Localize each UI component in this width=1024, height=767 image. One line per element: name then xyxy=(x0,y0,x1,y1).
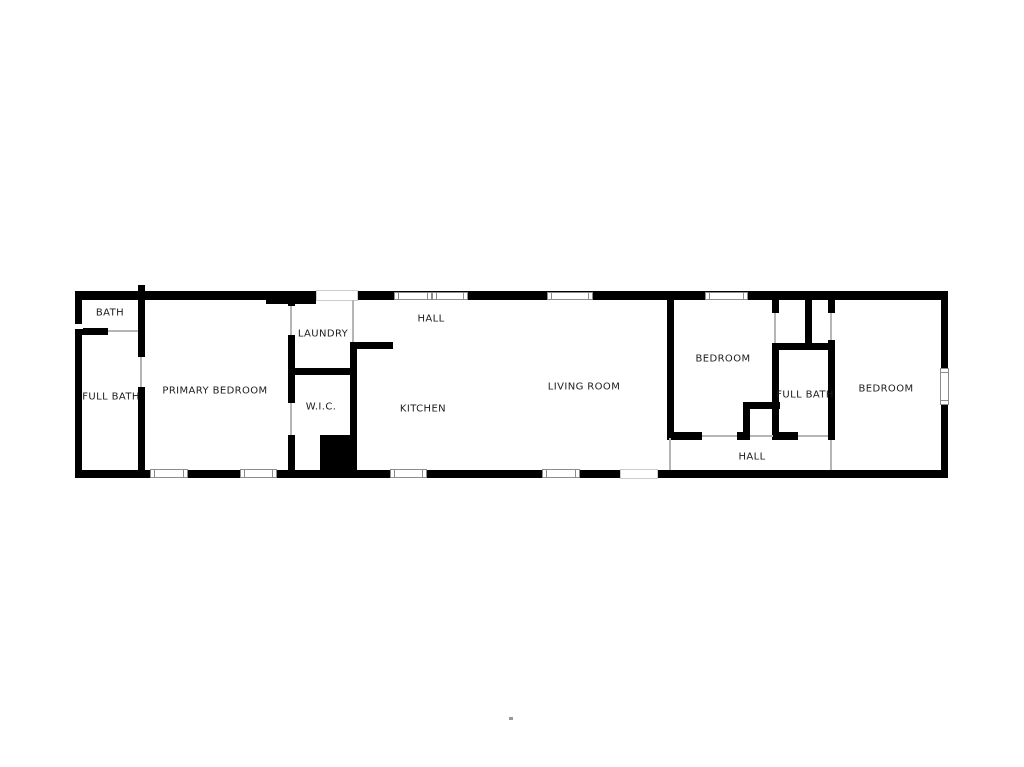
left-wall-notch xyxy=(74,324,83,329)
window-top-kitchen-a-window-icon xyxy=(394,292,432,300)
room-label-kitchen: KITCHEN xyxy=(400,404,446,415)
window-bottom-kitchen-window-icon xyxy=(390,469,427,478)
outer-left-wall-upper xyxy=(75,291,82,324)
bedroom2-closet-opening xyxy=(774,313,776,343)
window-top-kitchen-b-window-icon xyxy=(432,292,468,300)
window-top-bedroom2-window-icon xyxy=(705,292,748,300)
primary-east-wall-lower xyxy=(288,435,295,473)
artifact-dot xyxy=(509,717,513,720)
room-label-hall-2: HALL xyxy=(738,452,765,463)
outer-left-wall-lower xyxy=(75,329,82,478)
hall-living-room-opening xyxy=(669,438,671,470)
laundry-hall-opening xyxy=(352,300,354,342)
bedroom2-south-wall xyxy=(667,432,702,440)
hall-closet-left-wall xyxy=(743,408,750,440)
bath2-north-wall xyxy=(772,343,833,350)
bedroom3-door-opening xyxy=(830,440,832,470)
window-bottom-primary-b-window-icon xyxy=(240,469,277,478)
window-right-bedroom3-window-icon xyxy=(940,368,949,405)
primary-east-wall-mid xyxy=(288,335,295,403)
window-top-living-room-window-icon xyxy=(547,292,593,300)
bath-divider-wall xyxy=(82,328,108,335)
room-label-primary-bedroom: PRIMARY BEDROOM xyxy=(162,386,267,397)
room-label-bedroom-2: BEDROOM xyxy=(696,354,751,365)
room-label-wic: W.I.C. xyxy=(306,402,337,413)
fullbath2-door-opening xyxy=(798,435,828,437)
room-label-laundry: LAUNDRY xyxy=(298,329,348,340)
floor-plan: BATHFULL BATHPRIMARY BEDROOMLAUNDRYW.I.C… xyxy=(0,0,1024,767)
bath-door-opening xyxy=(108,330,138,332)
outer-bottom-wall-right xyxy=(658,470,948,478)
window-bottom-living-room-window-icon xyxy=(542,469,580,478)
window-bottom-primary-a-window-icon xyxy=(150,469,188,478)
main-entry-opening xyxy=(620,469,658,479)
laundry-wic-divider-wall xyxy=(295,368,350,375)
room-label-hall-1: HALL xyxy=(417,314,444,325)
utility-block xyxy=(320,435,357,478)
room-label-bath: BATH xyxy=(96,308,124,319)
bath-primary-wall-upper xyxy=(138,285,145,357)
hall-closet-opening xyxy=(750,435,773,437)
primary-east-wall-stub xyxy=(288,298,295,306)
bath2-east-wall-stub xyxy=(828,298,835,313)
bedroom3-closet-opening xyxy=(830,313,832,340)
room-label-living-room: LIVING ROOM xyxy=(548,382,620,393)
bath2-west-wall-stub xyxy=(772,298,779,313)
bath2-south-wall xyxy=(773,432,798,440)
wic-door-opening xyxy=(290,403,292,435)
living-bedroom-wall xyxy=(667,292,674,438)
room-label-full-bath-1: FULL BATH xyxy=(82,392,140,403)
fullbath1-door-opening xyxy=(140,357,142,387)
kitchen-laundry-top-wall xyxy=(357,342,393,349)
bedroom2-door-opening xyxy=(702,435,737,437)
primary-bedroom-door-opening xyxy=(290,306,292,335)
room-label-full-bath-2: FULL BATH xyxy=(776,390,834,401)
room-label-bedroom-3: BEDROOM xyxy=(859,384,914,395)
